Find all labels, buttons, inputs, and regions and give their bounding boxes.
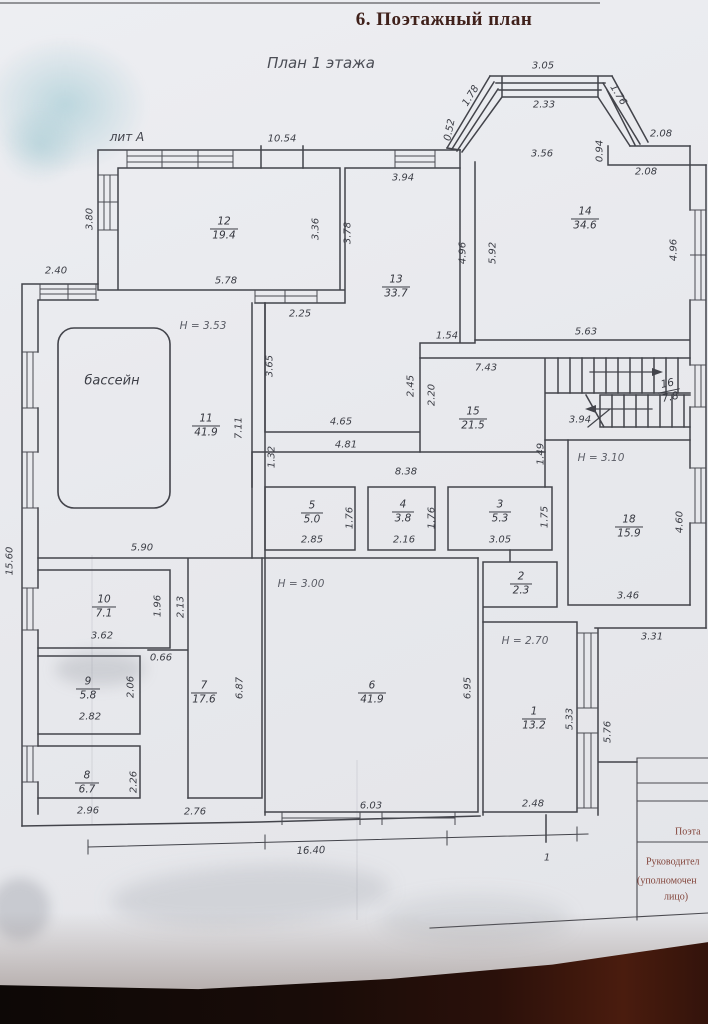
room-label-16: 167.8 <box>656 376 683 405</box>
dim-1-76-r5: 1.76 <box>345 507 356 529</box>
dim-7-43: 7.43 <box>475 363 497 374</box>
dim-1-76-r4: 1.76 <box>427 507 438 529</box>
dim-2-82: 2.82 <box>79 712 101 723</box>
dim-3-31: 3.31 <box>641 632 663 643</box>
dim-3-05-bay: 3.05 <box>532 61 554 72</box>
dim-0-66: 0.66 <box>150 653 172 664</box>
footer-line-3: лицо) <box>664 892 688 903</box>
dim-4-96-r13: 4.96 <box>458 242 469 264</box>
dim-2-13: 2.13 <box>176 596 187 618</box>
room-label-10: 107.1 <box>92 594 116 619</box>
plan-subtitle: План 1 этажа <box>267 54 375 72</box>
dim-mark-1: 1 <box>544 853 550 864</box>
dim-3-46: 3.46 <box>617 591 639 602</box>
building-letter-label: лит А <box>110 130 144 144</box>
dim-5-90: 5.90 <box>131 543 153 554</box>
dim-2-85: 2.85 <box>301 535 323 546</box>
room-label-14: 1434.6 <box>571 206 599 231</box>
room-label-8: 86.7 <box>75 770 99 795</box>
dim-3-65: 3.65 <box>265 355 276 377</box>
dim-4-65: 4.65 <box>330 417 352 428</box>
dim-3-94-stair: 3.94 <box>569 415 591 426</box>
room-label-12: 1219.4 <box>210 216 238 241</box>
dim-2-48: 2.48 <box>522 799 544 810</box>
room-label-2: 22.3 <box>510 571 532 596</box>
dim-1-49: 1.49 <box>536 443 547 465</box>
dim-1-32: 1.32 <box>267 446 278 468</box>
dim-2-25: 2.25 <box>289 309 311 320</box>
dim-4-96-r14: 4.96 <box>669 239 680 261</box>
dim-3-80: 3.80 <box>85 208 96 230</box>
dim-6-03: 6.03 <box>360 801 382 812</box>
dim-8-38: 8.38 <box>395 467 417 478</box>
dim-3-36: 3.36 <box>311 218 322 240</box>
room-label-6: 641.9 <box>358 680 386 705</box>
room-label-1: 113.2 <box>522 706 546 731</box>
dim-1-54: 1.54 <box>436 331 458 342</box>
dim-15-60: 15.60 <box>5 547 16 576</box>
dim-3-94-top: 3.94 <box>392 173 414 184</box>
dim-5-76: 5.76 <box>603 721 614 743</box>
dim-1-75: 1.75 <box>540 506 551 528</box>
scanned-floor-plan-page: 6. Поэтажный план План 1 этажа лит А бас… <box>0 0 708 1024</box>
room-label-7: 717.6 <box>191 680 217 705</box>
dim-3-05-r3: 3.05 <box>489 535 511 546</box>
dim-1-78: 1.78 <box>460 84 481 109</box>
dim-2-40: 2.40 <box>45 266 67 277</box>
room-label-18: 1815.9 <box>615 514 643 539</box>
dim-2-08-a: 2.08 <box>650 129 672 140</box>
height-label-room1: H = 2.70 <box>502 635 549 647</box>
plan-labels: 6. Поэтажный план План 1 этажа лит А бас… <box>0 0 708 1024</box>
dim-6-95: 6.95 <box>463 677 474 699</box>
dim-2-20: 2.20 <box>427 384 438 406</box>
dim-2-96: 2.96 <box>77 806 99 817</box>
room-label-4: 43.8 <box>392 499 414 524</box>
room-label-13: 1333.7 <box>382 274 410 299</box>
dim-7-11: 7.11 <box>234 417 245 439</box>
dim-2-33: 2.33 <box>533 100 555 111</box>
room-label-11: 1141.9 <box>192 413 220 438</box>
footer-line-1: Руководител <box>646 857 700 868</box>
footer-line-2: (уполномочен <box>637 876 697 887</box>
dim-2-06: 2.06 <box>126 676 137 698</box>
dim-4-60: 4.60 <box>675 511 686 533</box>
height-label-room6: H = 3.00 <box>278 578 325 590</box>
room-label-3: 35.3 <box>489 499 511 524</box>
dim-10-54: 10.54 <box>268 134 297 145</box>
dim-5-78: 5.78 <box>215 276 237 287</box>
room-label-9: 95.8 <box>76 676 100 701</box>
dim-0-94: 0.94 <box>595 140 606 162</box>
dim-2-45: 2.45 <box>406 375 417 397</box>
dim-3-78: 3.78 <box>343 222 354 244</box>
height-label-room18: H = 3.10 <box>578 452 625 464</box>
dim-4-81: 4.81 <box>335 440 357 451</box>
room-label-5: 55.0 <box>301 500 323 525</box>
footer-col-title: Поэта <box>675 827 701 838</box>
dim-2-08-b: 2.08 <box>635 167 657 178</box>
dim-0-52: 0.52 <box>442 118 457 142</box>
dim-1-76-bay: 1.76 <box>607 83 628 108</box>
dim-16-40: 16.40 <box>296 845 325 857</box>
dim-3-56: 3.56 <box>531 149 553 160</box>
dim-2-16: 2.16 <box>393 535 415 546</box>
pool-label: бассейн <box>84 374 139 389</box>
room-label-15: 1521.5 <box>459 406 487 431</box>
page-title: 6. Поэтажный план <box>356 9 533 31</box>
dim-5-63: 5.63 <box>575 327 597 338</box>
dim-6-87: 6.87 <box>235 677 246 699</box>
dim-2-76: 2.76 <box>184 807 206 818</box>
height-label-pool: H = 3.53 <box>180 320 227 332</box>
dim-5-92: 5.92 <box>488 242 499 264</box>
dim-2-26: 2.26 <box>129 771 140 793</box>
dim-5-33: 5.33 <box>565 708 576 730</box>
dim-1-96: 1.96 <box>153 595 164 617</box>
dim-3-62: 3.62 <box>91 631 113 642</box>
